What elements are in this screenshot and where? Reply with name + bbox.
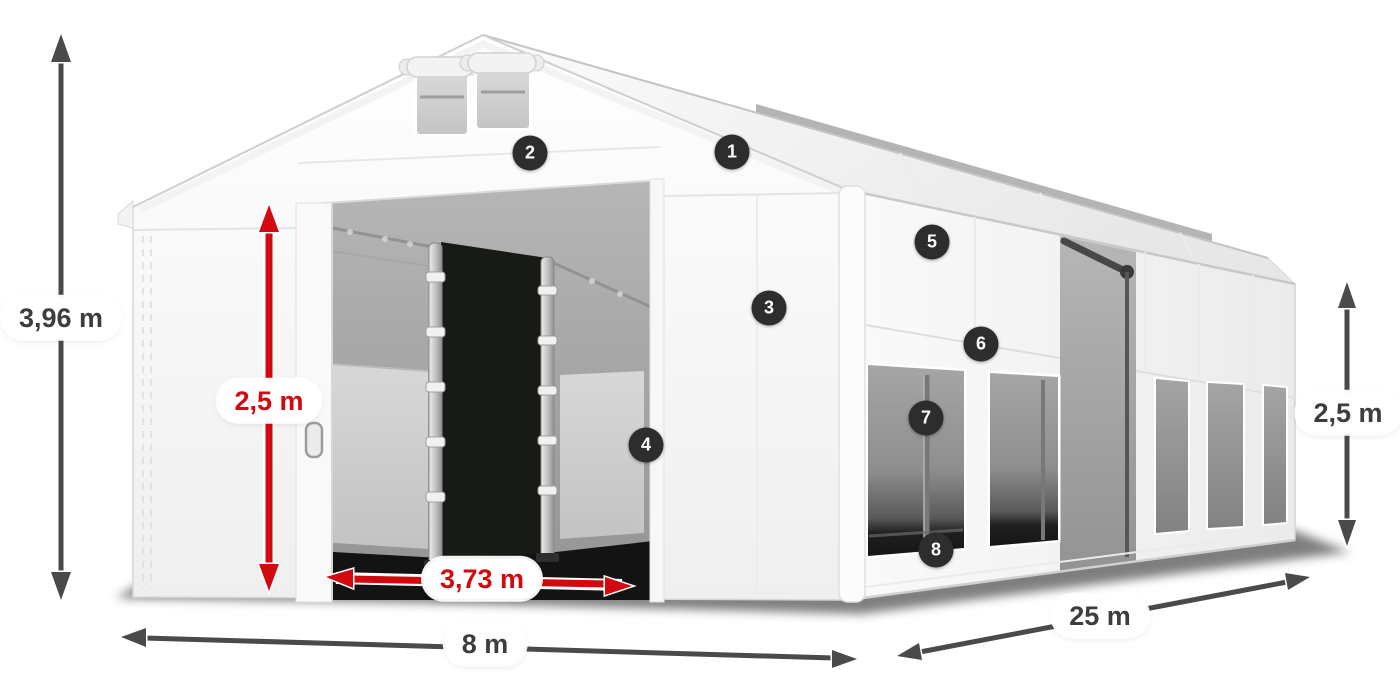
feature-badge-1: 1 <box>715 135 750 170</box>
dimension-label-side-height: 2,5 m <box>1297 393 1398 433</box>
feature-badge-2: 2 <box>513 136 548 171</box>
label-text: 3,73 m <box>440 564 524 594</box>
feature-badge-8: 8 <box>919 533 954 568</box>
dimension-label-total-height: 3,96 m <box>3 298 119 338</box>
diagram-canvas: 3,96 m 2,5 m 3,73 m 8 m 25 m 2,5 m 1 2 3… <box>0 0 1400 700</box>
badge-number: 8 <box>931 540 941 561</box>
badge-number: 1 <box>727 142 737 163</box>
label-text: 3,96 m <box>19 303 103 333</box>
badge-number: 4 <box>641 435 651 456</box>
feature-badge-4: 4 <box>629 428 664 463</box>
feature-badge-7: 7 <box>909 401 944 436</box>
badge-number: 2 <box>525 143 535 164</box>
label-text: 2,5 m <box>1313 398 1382 428</box>
label-text: 2,5 m <box>234 386 303 416</box>
dimension-label-entrance-height: 2,5 m <box>218 381 319 421</box>
dimension-label-entrance-width: 3,73 m <box>424 559 540 599</box>
feature-badge-3: 3 <box>752 291 787 326</box>
badge-number: 5 <box>927 232 937 253</box>
label-text: 8 m <box>462 629 509 659</box>
badge-number: 3 <box>764 298 774 319</box>
dimension-label-tent-width: 8 m <box>446 624 525 664</box>
dimension-label-tent-length: 25 m <box>1053 596 1147 636</box>
label-text: 25 m <box>1069 601 1131 631</box>
feature-badge-6: 6 <box>964 327 999 362</box>
badge-number: 7 <box>921 408 931 429</box>
badge-number: 6 <box>976 334 986 355</box>
dimension-arrows <box>0 0 1400 700</box>
feature-badge-5: 5 <box>915 225 950 260</box>
